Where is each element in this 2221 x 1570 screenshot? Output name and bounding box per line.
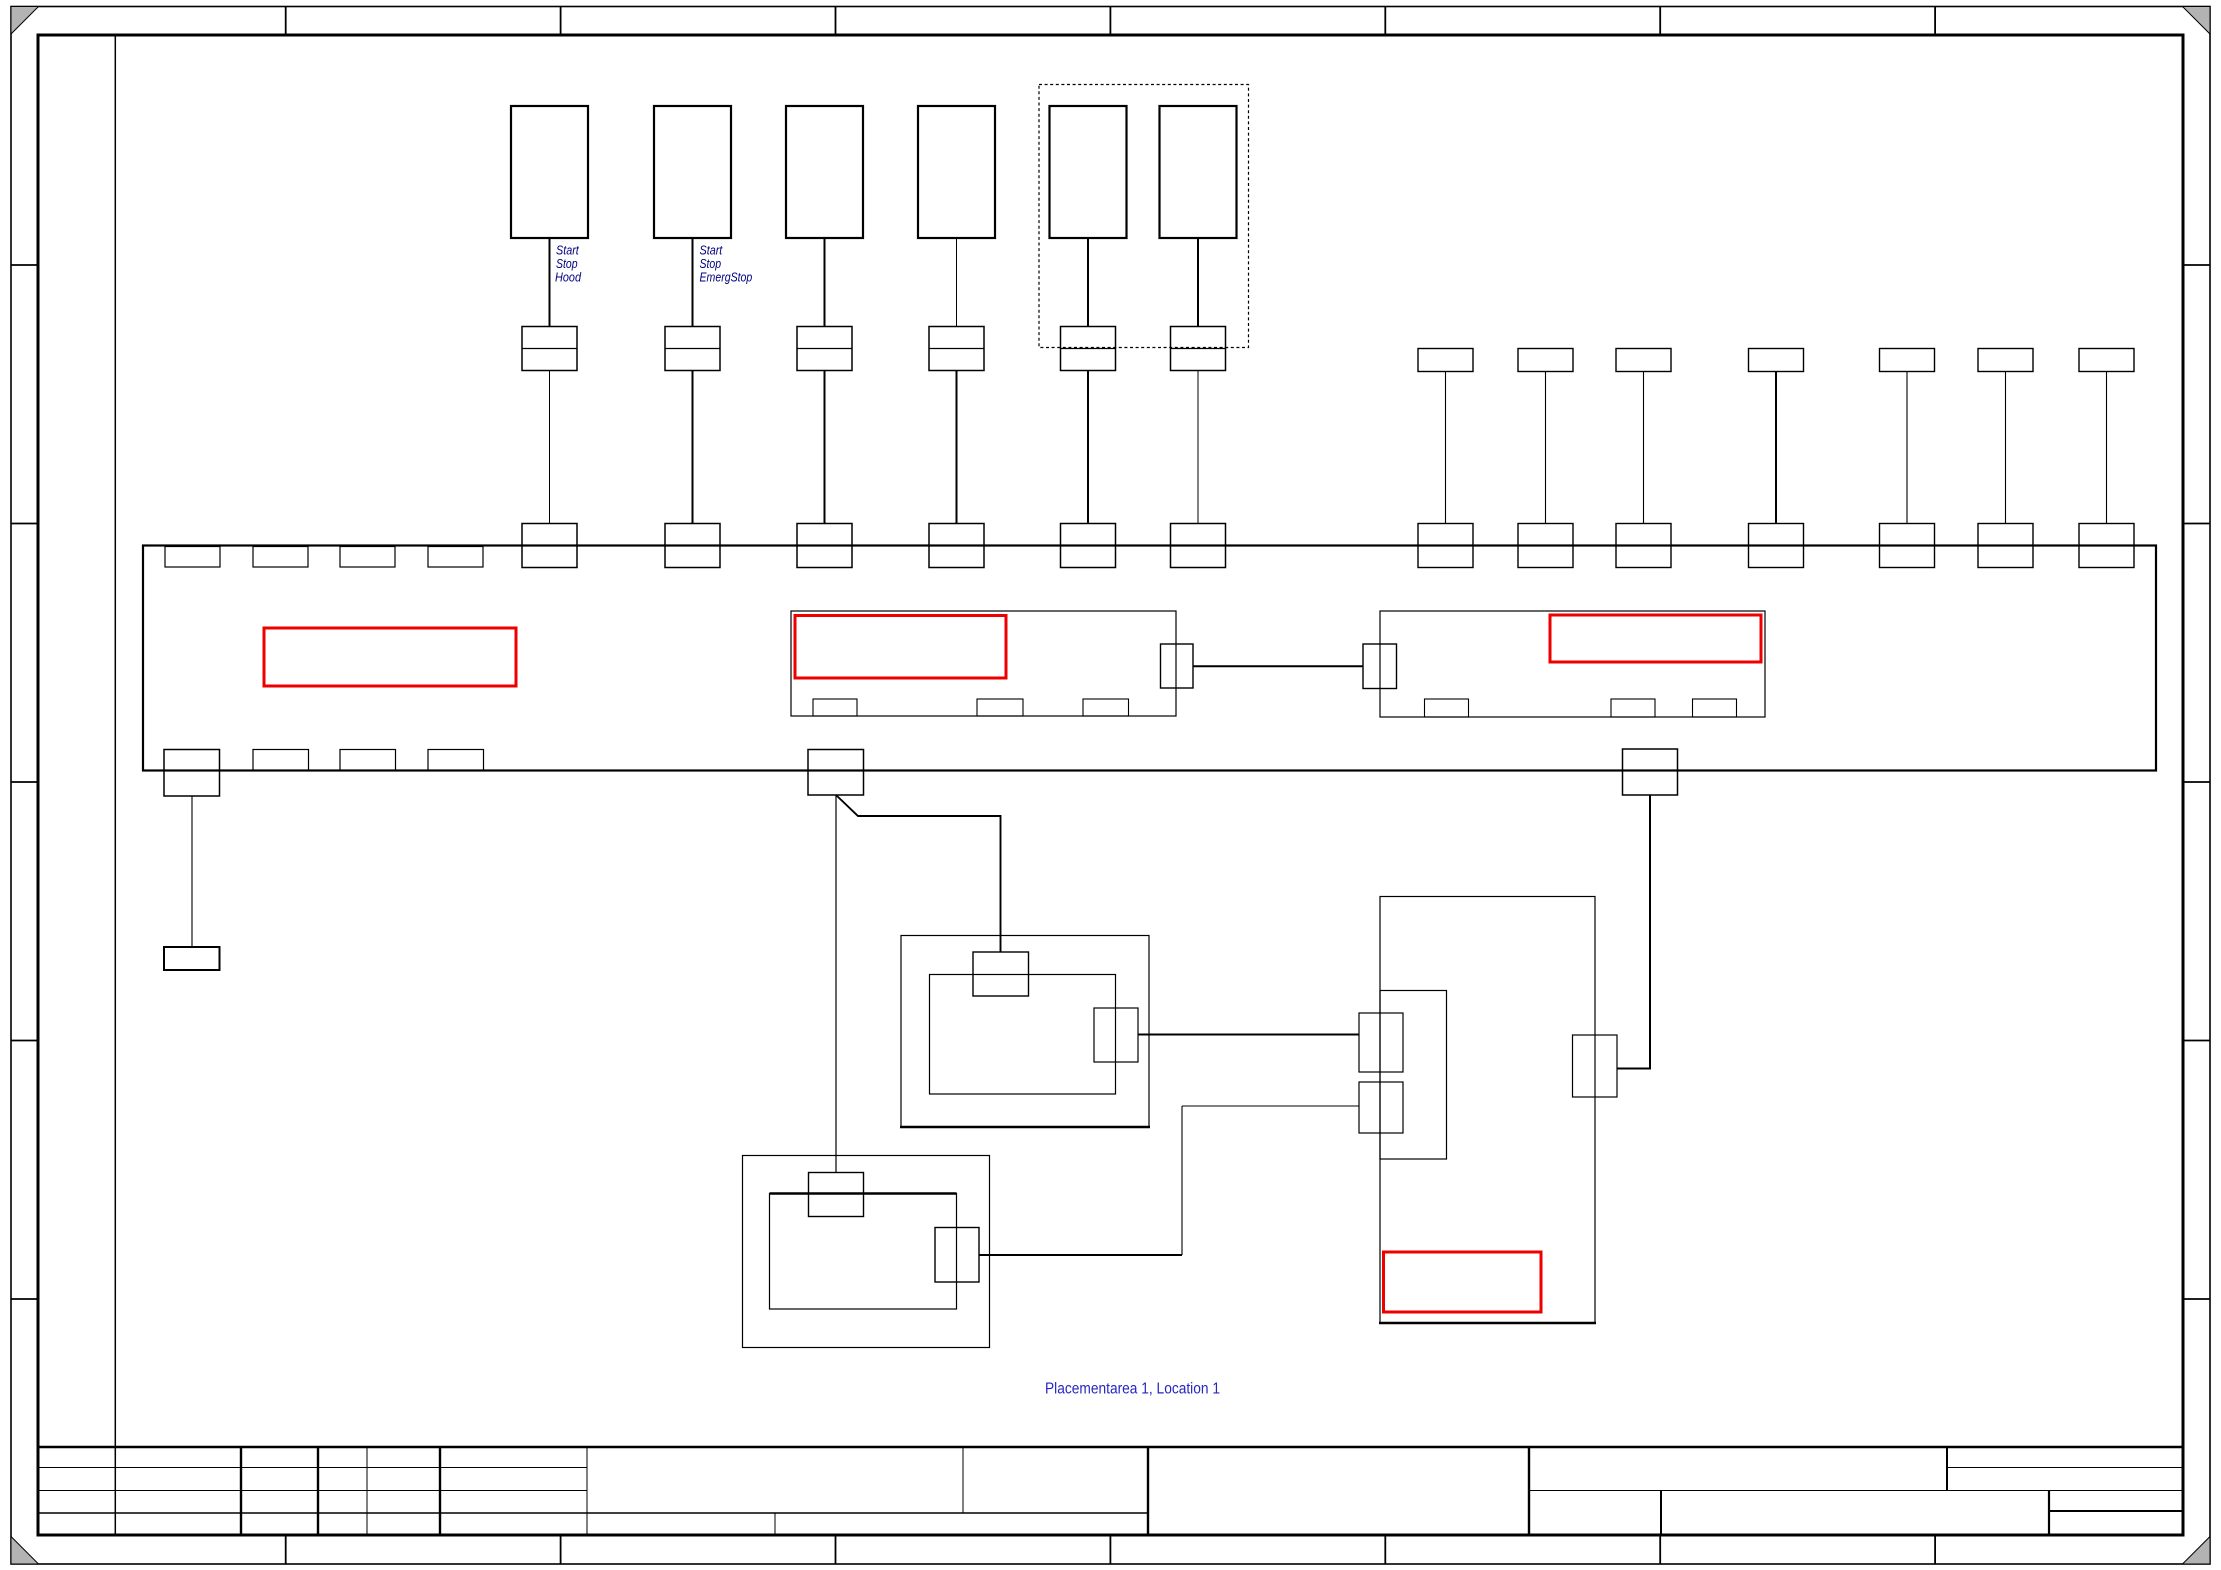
svg-text:Start: Start bbox=[700, 244, 723, 258]
svg-text:EmergStop: EmergStop bbox=[700, 270, 753, 284]
svg-text:Stop: Stop bbox=[700, 257, 722, 271]
svg-text:Stop: Stop bbox=[556, 257, 578, 271]
svg-text:Start: Start bbox=[556, 244, 579, 258]
svg-text:Placementarea 1, Location 1: Placementarea 1, Location 1 bbox=[1045, 1380, 1220, 1397]
svg-text:Hood: Hood bbox=[555, 270, 582, 284]
